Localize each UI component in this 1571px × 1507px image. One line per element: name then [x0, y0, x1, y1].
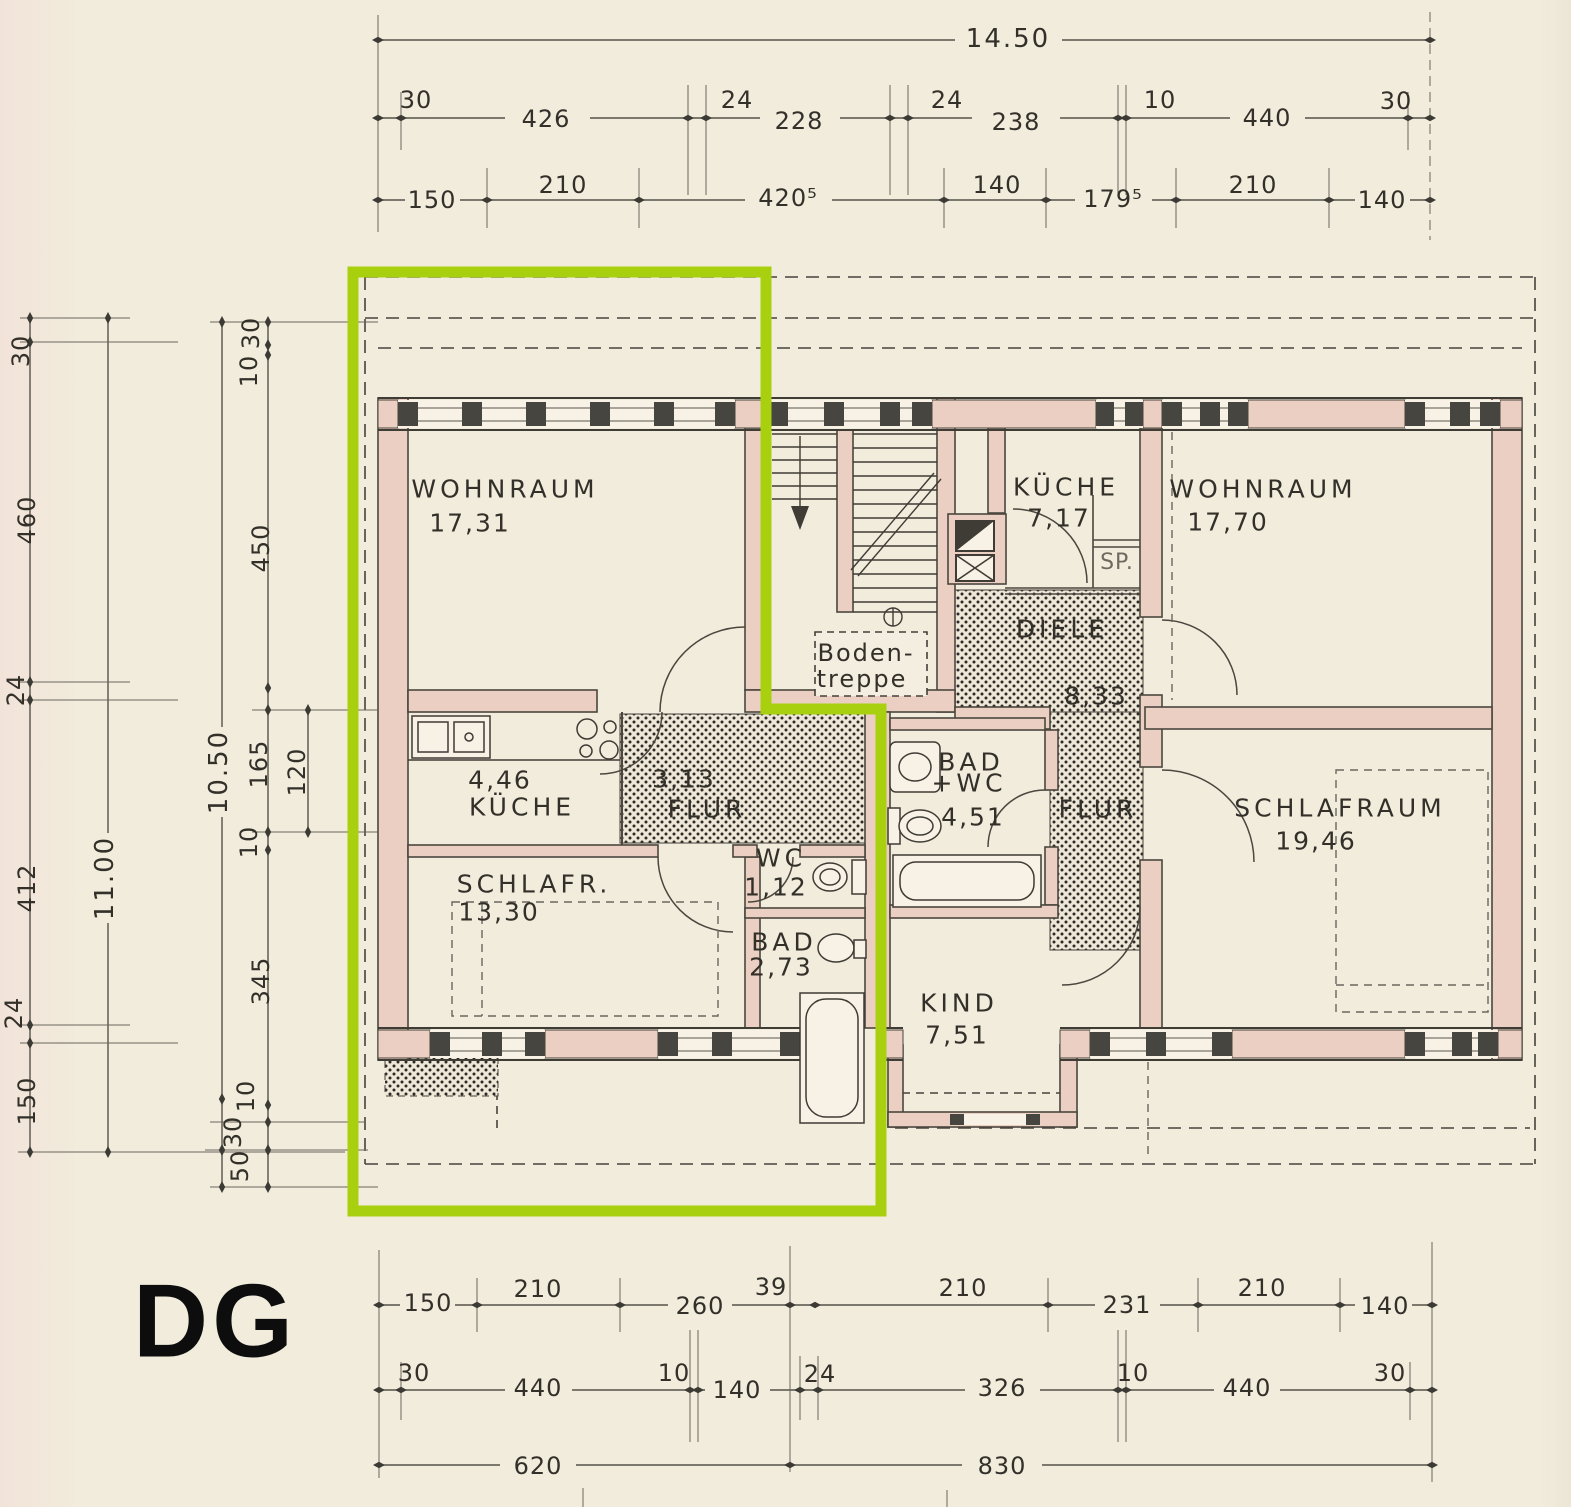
dim-label: 39: [755, 1275, 788, 1299]
dim-label: 238: [992, 110, 1041, 134]
dim-label: 10: [237, 355, 261, 388]
dim-label: 440: [1243, 106, 1292, 130]
room-area: 8,33: [1064, 684, 1128, 709]
dim-left-total: 11.00: [92, 836, 118, 920]
dim-label: 10: [1144, 88, 1177, 112]
dim-label: 24: [804, 1362, 837, 1386]
room-label-wohnraum-right: WOHNRAUM: [1169, 477, 1356, 502]
dim-left-total: 10.50: [206, 730, 232, 814]
kitchen-fixtures: [408, 716, 620, 760]
dim-label: 210: [1238, 1276, 1287, 1300]
dim-label: 30: [1380, 89, 1413, 113]
dim-label: 120: [285, 748, 309, 797]
dim-label: 345: [249, 957, 273, 1006]
dim-label: 412: [15, 864, 39, 913]
dim-label: 10: [237, 826, 261, 859]
dim-label: 210: [1229, 173, 1278, 197]
dim-label: 24: [4, 674, 28, 707]
room-label-diele: DIELE: [1016, 617, 1108, 642]
dim-label: 140: [713, 1378, 762, 1402]
room-label-bad-left: BAD: [751, 930, 817, 955]
dim-label: 326: [978, 1376, 1027, 1400]
dim-label: 10: [1117, 1361, 1150, 1385]
dim-label: 260: [676, 1294, 725, 1318]
chimney-shafts: [956, 521, 994, 581]
room-area: 7,17: [1027, 506, 1091, 531]
dim-label: 228: [775, 109, 824, 133]
floor-label-dg: DG: [133, 1263, 297, 1382]
room-area: 3,13: [652, 767, 716, 792]
room-label-schlafr-left: SCHLAFR.: [457, 872, 612, 897]
room-area: 1,12: [744, 875, 808, 900]
room-area: 2,73: [749, 955, 813, 980]
room-label-kueche-right: KÜCHE: [1013, 475, 1119, 500]
staircase: [772, 434, 941, 626]
room-label-flur-right: FLUR: [1059, 797, 1138, 822]
dim-label: 210: [939, 1276, 988, 1300]
dim-label: 24: [2, 997, 26, 1030]
dim-label: 30: [400, 88, 433, 112]
dim-label: 830: [978, 1454, 1027, 1478]
dim-label: 231: [1103, 1293, 1152, 1317]
dim-label: 30: [1374, 1361, 1407, 1385]
dim-top-total: 14.50: [966, 26, 1050, 52]
room-label-wohnraum-left: WOHNRAUM: [411, 477, 598, 502]
dim-label: 150: [404, 1291, 453, 1315]
room-area: 13,30: [458, 900, 540, 925]
dim-label: 150: [408, 188, 457, 212]
dim-label: 24: [721, 88, 754, 112]
dim-label: 210: [539, 173, 588, 197]
room-label-kueche-left: KÜCHE: [469, 795, 575, 820]
dim-label: 140: [1361, 1294, 1410, 1318]
room-area: 17,31: [429, 511, 511, 536]
room-area: 19,46: [1275, 829, 1357, 854]
dim-label: 30: [9, 335, 33, 368]
dim-label: 140: [1358, 188, 1407, 212]
room-label-schlafraum-right: SCHLAFRAUM: [1234, 796, 1445, 821]
dim-label: 210: [514, 1277, 563, 1301]
room-area: 4,46: [468, 768, 532, 793]
room-area: 17,70: [1187, 510, 1269, 535]
floorplan-page: 14.50 30 426 24 228 24 238 10 440 30 150…: [0, 0, 1571, 1507]
room-area: 7,51: [925, 1023, 989, 1048]
stair-direction-arrow: [791, 506, 809, 530]
dim-label: 165: [247, 740, 271, 789]
dim-label: 450: [249, 524, 273, 573]
dim-label: 426: [522, 107, 571, 131]
dim-label: 440: [1223, 1376, 1272, 1400]
room-label-flur-left: FLUR: [668, 797, 747, 822]
room-label-kind: KIND: [920, 991, 998, 1016]
room-label-sp: SP.: [1100, 552, 1134, 574]
dim-label: 30: [239, 317, 263, 350]
bodentreppe-label-line2: treppe: [817, 667, 908, 691]
dim-label: 10: [234, 1080, 258, 1113]
dim-label: 140: [973, 173, 1022, 197]
dim-label: 50: [228, 1150, 252, 1183]
room-label-wc-left: WC: [756, 846, 806, 871]
dim-label: 150: [15, 1077, 39, 1126]
dim-label: 24: [931, 88, 964, 112]
dim-label: 440: [514, 1376, 563, 1400]
room-label-bad-wc2: +WC: [931, 771, 1006, 796]
dim-label: 30: [398, 1361, 431, 1385]
room-area: 4,51: [941, 805, 1005, 830]
dim-label: 460: [15, 496, 39, 545]
dim-label: 420⁵: [758, 186, 817, 210]
bodentreppe-label-line1: Boden-: [817, 641, 914, 665]
dim-label: 179⁵: [1083, 187, 1142, 211]
dim-label: 10: [658, 1361, 691, 1385]
dim-label: 620: [514, 1454, 563, 1478]
dim-label: 30: [221, 1116, 245, 1149]
